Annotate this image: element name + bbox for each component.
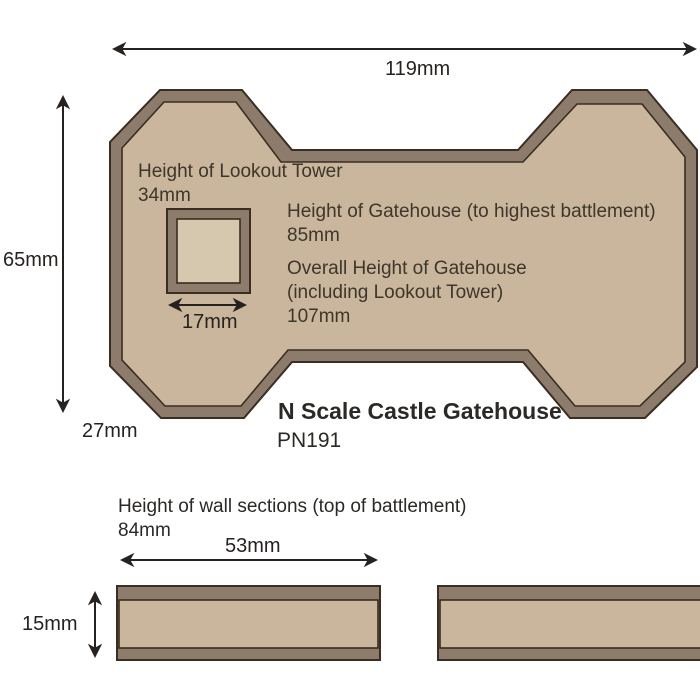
product-code: PN191 [277,429,341,453]
wall-sections-heading: Height of wall sections (top of battleme… [118,496,467,518]
overall-height-value: 107mm [287,305,527,329]
gatehouse-height-label-text: Height of Gatehouse (to highest battleme… [287,200,656,224]
overall-height-label-line1: Overall Height of Gatehouse [287,257,527,281]
wall-section-right [438,586,700,660]
wall-sections-height-value: 84mm [118,520,171,542]
wall-section-left [117,586,380,660]
overall-height-label-line2: (including Lookout Tower) [287,281,527,305]
width-dimension-label: 119mm [385,58,450,81]
overall-height-label: Overall Height of Gatehouse (including L… [287,257,527,329]
lookout-tower-footprint [167,209,250,293]
tower-inner-fill [177,219,240,283]
gatehouse-height-value: 85mm [287,224,656,248]
wall-length-dimension-label: 53mm [225,535,281,558]
gatehouse-height-label: Height of Gatehouse (to highest battleme… [287,200,656,248]
wall-left-inner-fill [119,600,378,648]
lookout-tower-height-label-line1: Height of Lookout Tower [138,160,343,184]
wall-thickness-dimension-label: 15mm [22,613,78,636]
depth-dimension-label: 27mm [82,420,138,443]
diagram-canvas: 119mm 65mm 27mm 17mm Height of Lookout T… [0,0,700,700]
diagram-artwork [0,0,700,700]
product-title: N Scale Castle Gatehouse [278,398,562,425]
tower-width-dimension-label: 17mm [182,311,238,334]
height-dimension-label: 65mm [3,249,59,272]
wall-right-inner-fill [440,600,700,648]
